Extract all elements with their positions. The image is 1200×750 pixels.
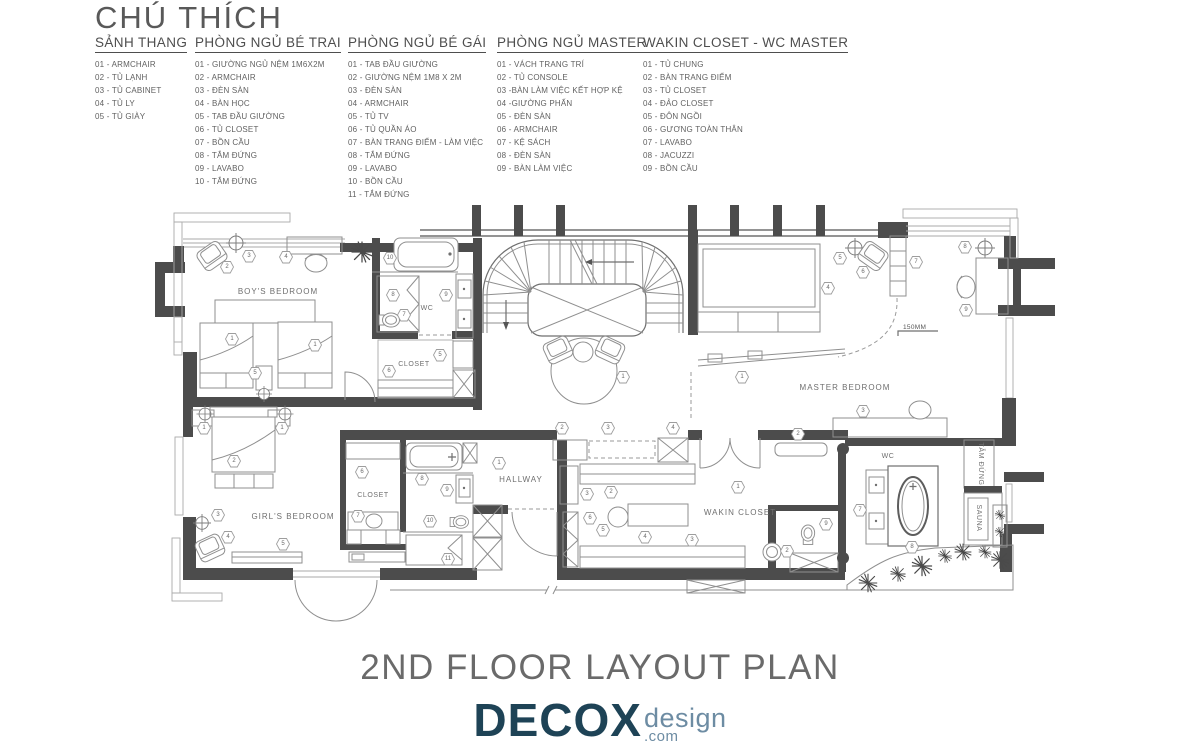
bed-icon [200,323,253,388]
girls-bedroom: GIRL'S BEDROOM [192,406,335,564]
door-arc [512,512,557,556]
boys-bedroom-label: BOY'S BEDROOM [238,287,318,296]
logo-side: design .com [644,698,727,744]
headboard-icon [215,300,315,323]
desk-chair-icon [957,276,975,298]
toilet-icon [450,516,468,529]
landing-seating [542,335,627,404]
master-bed-icon [698,244,820,332]
girls-wc [406,443,477,565]
ottoman-icon [608,507,628,527]
double-door-arc [700,438,760,468]
plant-icon [352,242,372,262]
sink-icon [456,475,473,503]
step-curve [838,298,897,357]
column-icon [837,443,849,455]
wakin-closet-label: WAKIN CLOSET [704,508,776,517]
ceiling-lamp-icon [277,406,294,423]
floor-plan-sheet: CHÚ THÍCH SẢNH THANG01 - ARMCHAIR02 - TỦ… [0,0,1200,750]
wakin-closet: WAKIN CLOSET [553,438,815,568]
toilet-icon [379,313,400,327]
logo-word-text: design [644,706,727,730]
sauna-box: SAUNA [964,486,1002,545]
floor-lamp-icon [975,238,995,258]
armchair-icon [542,335,575,366]
bed-icon [278,322,332,388]
stool-icon [366,514,382,528]
floor-plan-drawing: BOY'S BEDROOM WC [0,0,1200,750]
brand-logo: DECOX design .com [0,698,1200,744]
vessel-sink-icon [763,543,781,561]
boys-wc-label: WC [421,305,434,312]
step-symbol [898,331,938,336]
bathtub-icon [394,238,458,271]
feature-wall-icon [698,349,845,366]
hallway: HALLWAY [473,475,557,570]
shower-box: TẮM ĐỨNG [964,440,994,488]
master-wc-label: WC [882,453,895,460]
page-title: 2ND FLOOR LAYOUT PLAN [0,648,1200,688]
girls-bedroom-label: GIRL'S BEDROOM [251,512,334,521]
stair-direction-arrows [503,259,634,330]
double-vanity-icon [866,470,888,544]
column-icon [837,552,849,564]
hallway-label: HALLWAY [499,475,543,484]
console-desk-icon [833,418,947,437]
bathtub-icon [406,443,462,470]
bench-icon [775,443,827,456]
vanity-icon [456,274,473,338]
round-table-icon [573,342,593,362]
master-wc: WC TẮM ĐỨNG SAUNA [847,440,1013,592]
stair-treads [483,240,683,323]
step-note: 150MM [903,324,926,331]
tam-dung-label: TẮM ĐỨNG [977,442,986,485]
staircase [483,240,683,336]
ceiling-lamp-icon [197,406,214,423]
floor-lamp-icon [226,233,246,253]
toilet-icon [801,525,814,544]
logo-brand-text: DECOX [473,698,642,742]
stool-icon [909,401,931,419]
desk-chair-icon [305,254,327,272]
armchair-icon [594,335,627,366]
girls-closet-label: CLOSET [357,492,389,499]
bed-icon [210,407,277,488]
sauna-label: SAUNA [975,504,982,531]
study-desk-icon [287,237,342,254]
closet-island-icon [628,504,688,526]
boys-closet-label: CLOSET [398,361,430,368]
laundry-units [473,505,502,570]
master-bedroom-label: MASTER BEDROOM [800,383,891,392]
jacuzzi-icon [888,466,938,546]
